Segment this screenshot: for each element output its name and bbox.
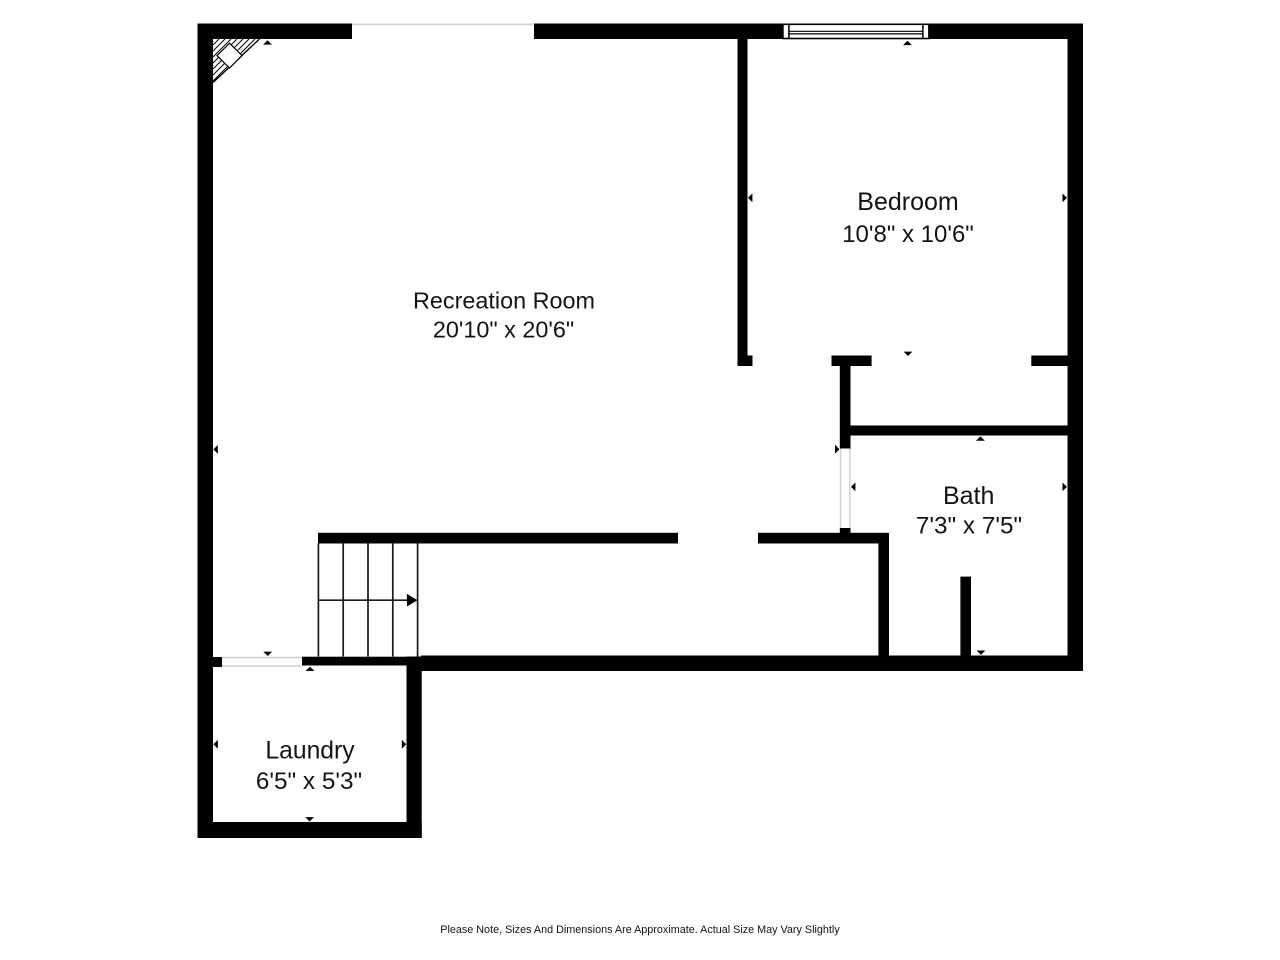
svg-text:Recreation Room: Recreation Room: [413, 288, 595, 314]
svg-text:10'8" x 10'6": 10'8" x 10'6": [842, 221, 974, 248]
svg-text:Laundry: Laundry: [265, 737, 355, 764]
svg-text:20'10" x 20'6": 20'10" x 20'6": [433, 317, 574, 343]
svg-text:6'5" x 5'3": 6'5" x 5'3": [256, 768, 362, 795]
svg-text:Please Note, Sizes And Dimensi: Please Note, Sizes And Dimensions Are Ap…: [440, 924, 840, 936]
svg-text:7'3" x 7'5": 7'3" x 7'5": [916, 513, 1022, 540]
svg-text:Bedroom: Bedroom: [857, 188, 958, 216]
svg-text:Bath: Bath: [943, 482, 994, 510]
